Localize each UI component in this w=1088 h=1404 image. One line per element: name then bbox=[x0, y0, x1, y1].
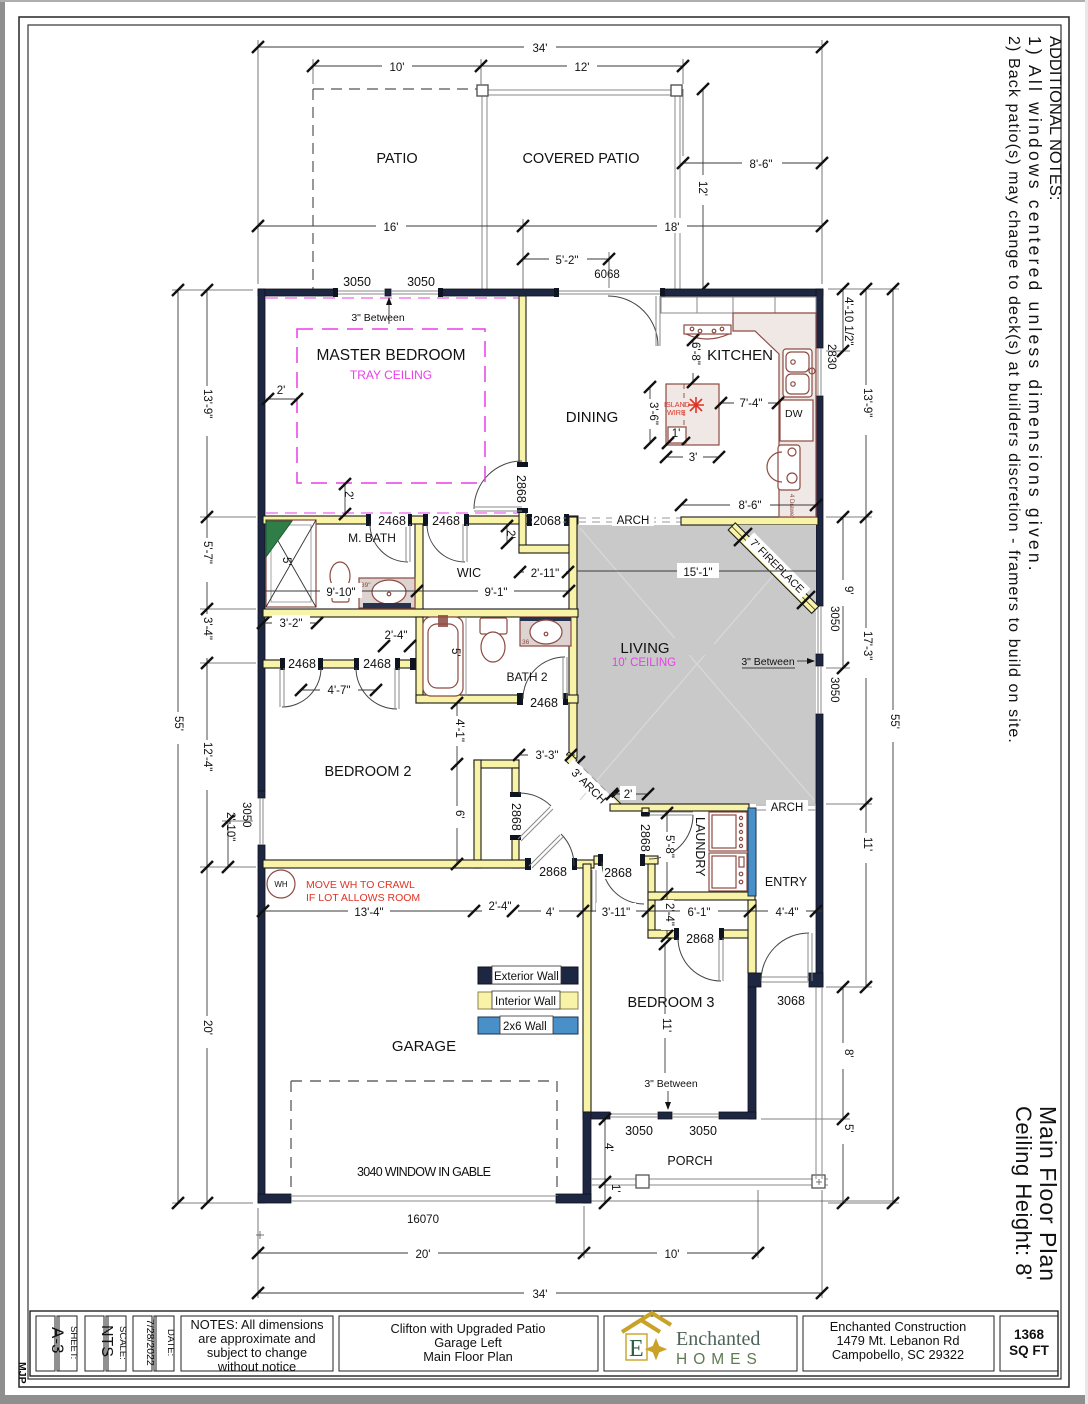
svg-text:11': 11' bbox=[660, 1018, 672, 1032]
svg-text:DINING: DINING bbox=[566, 409, 619, 426]
svg-text:39": 39" bbox=[361, 582, 371, 589]
svg-text:Interior Wall: Interior Wall bbox=[495, 996, 556, 1008]
svg-text:4': 4' bbox=[602, 1143, 614, 1152]
svg-text:TRAY CEILING: TRAY CEILING bbox=[350, 368, 432, 382]
svg-text:Garage Left: Garage Left bbox=[434, 1335, 502, 1350]
svg-text:2068: 2068 bbox=[533, 514, 561, 528]
svg-text:3'-4": 3'-4" bbox=[201, 617, 213, 640]
svg-text:17'-3": 17'-3" bbox=[861, 631, 873, 660]
svg-text:6'-8": 6'-8" bbox=[689, 342, 701, 365]
svg-text:SHEET:: SHEET: bbox=[68, 1326, 79, 1359]
svg-text:Ceiling Height: 8': Ceiling Height: 8' bbox=[1011, 1106, 1036, 1281]
svg-text:2830: 2830 bbox=[825, 344, 837, 370]
svg-text:3'-2": 3'-2" bbox=[280, 618, 303, 630]
svg-text:3'-6": 3'-6" bbox=[647, 402, 659, 425]
svg-text:13'-4": 13'-4" bbox=[354, 907, 383, 919]
svg-text:2x6 Wall: 2x6 Wall bbox=[503, 1021, 547, 1033]
svg-text:subject to change: subject to change bbox=[207, 1345, 307, 1360]
svg-text:8'-6": 8'-6" bbox=[750, 159, 773, 171]
svg-text:2868: 2868 bbox=[509, 803, 523, 831]
svg-text:2868: 2868 bbox=[514, 475, 528, 503]
svg-text:2'-4": 2'-4" bbox=[489, 901, 512, 913]
svg-text:ARCH: ARCH bbox=[771, 802, 804, 814]
svg-text:Campobello, SC 29322: Campobello, SC 29322 bbox=[832, 1347, 964, 1362]
svg-text:2468: 2468 bbox=[363, 657, 391, 671]
svg-text:16': 16' bbox=[384, 222, 399, 234]
svg-text:6068: 6068 bbox=[594, 269, 620, 281]
svg-text:WIC: WIC bbox=[457, 566, 481, 580]
svg-text:3" Between: 3" Between bbox=[351, 312, 405, 324]
svg-text:2468: 2468 bbox=[288, 657, 316, 671]
svg-text:ADDITIONAL NOTES:: ADDITIONAL NOTES: bbox=[1046, 36, 1064, 200]
svg-text:2468: 2468 bbox=[378, 514, 406, 528]
svg-text:HOMES: HOMES bbox=[676, 1351, 763, 1368]
svg-text:2868: 2868 bbox=[686, 932, 714, 946]
svg-text:2'-4": 2'-4" bbox=[663, 903, 675, 926]
svg-text:3'-11": 3'-11" bbox=[602, 907, 630, 919]
svg-text:are approximate and: are approximate and bbox=[198, 1331, 315, 1346]
svg-text:2'-4": 2'-4" bbox=[385, 630, 408, 642]
svg-text:A-3: A-3 bbox=[48, 1327, 67, 1353]
svg-text:16070: 16070 bbox=[407, 1214, 439, 1226]
svg-text:4 Drawer: 4 Drawer bbox=[788, 494, 794, 518]
svg-text:3040 WINDOW IN GABLE: 3040 WINDOW IN GABLE bbox=[357, 1165, 491, 1179]
svg-text:5'-8": 5'-8" bbox=[663, 835, 675, 858]
svg-text:ARCH: ARCH bbox=[617, 515, 650, 527]
svg-text:9'-1": 9'-1" bbox=[485, 587, 508, 599]
svg-text:ENTRY: ENTRY bbox=[765, 875, 808, 889]
svg-text:COVERED PATIO: COVERED PATIO bbox=[522, 151, 639, 167]
svg-text:Enchanted: Enchanted bbox=[676, 1328, 760, 1350]
svg-text:7/28/2022: 7/28/2022 bbox=[144, 1319, 156, 1366]
svg-text:2': 2' bbox=[504, 530, 516, 539]
svg-text:MOVE WH TO CRAWL: MOVE WH TO CRAWL bbox=[306, 879, 415, 891]
svg-text:3050: 3050 bbox=[407, 275, 435, 289]
svg-text:GARAGE: GARAGE bbox=[392, 1038, 456, 1055]
svg-text:13'-9": 13'-9" bbox=[861, 388, 873, 417]
svg-text:5': 5' bbox=[842, 1124, 854, 1133]
svg-text:Clifton with Upgraded Patio: Clifton with Upgraded Patio bbox=[390, 1321, 545, 1336]
svg-text:55': 55' bbox=[888, 714, 900, 729]
svg-text:WIRE: WIRE bbox=[667, 408, 686, 417]
svg-text:4'-10 1/2": 4'-10 1/2" bbox=[842, 297, 854, 345]
svg-text:20': 20' bbox=[201, 1020, 213, 1035]
svg-text:34': 34' bbox=[533, 1289, 548, 1301]
svg-text:NOTES: All dimensions: NOTES: All dimensions bbox=[191, 1317, 324, 1332]
svg-text:2868: 2868 bbox=[604, 866, 632, 880]
svg-text:NTS: NTS bbox=[98, 1325, 115, 1357]
svg-text:55': 55' bbox=[172, 716, 184, 731]
svg-text:20': 20' bbox=[416, 1249, 431, 1261]
svg-text:MASTER BEDROOM: MASTER BEDROOM bbox=[317, 347, 466, 364]
svg-text:36: 36 bbox=[522, 639, 530, 646]
svg-text:BATH 2: BATH 2 bbox=[506, 670, 547, 684]
svg-text:9'-10": 9'-10" bbox=[326, 587, 355, 599]
svg-text:10': 10' bbox=[390, 62, 405, 74]
svg-text:DW: DW bbox=[785, 408, 803, 420]
svg-text:SQ FT: SQ FT bbox=[1009, 1343, 1050, 1358]
svg-text:2868: 2868 bbox=[638, 824, 652, 852]
svg-text:4'-4": 4'-4" bbox=[776, 907, 799, 919]
svg-text:5': 5' bbox=[449, 648, 461, 657]
svg-text:18': 18' bbox=[665, 222, 680, 234]
svg-text:11': 11' bbox=[861, 837, 873, 851]
svg-text:2': 2' bbox=[342, 491, 354, 500]
svg-text:3050: 3050 bbox=[625, 1124, 653, 1138]
svg-text:IF LOT ALLOWS ROOM: IF LOT ALLOWS ROOM bbox=[306, 892, 420, 904]
svg-text:5': 5' bbox=[280, 557, 292, 566]
svg-text:3" Between: 3" Between bbox=[741, 656, 795, 668]
svg-text:3'-3": 3'-3" bbox=[536, 750, 559, 762]
svg-text:Exterior Wall: Exterior Wall bbox=[494, 971, 559, 983]
svg-text:34': 34' bbox=[533, 43, 548, 55]
svg-text:3': 3' bbox=[689, 452, 698, 464]
svg-text:8'-6": 8'-6" bbox=[739, 500, 762, 512]
svg-text:WH: WH bbox=[274, 880, 288, 889]
svg-text:M. BATH: M. BATH bbox=[348, 531, 396, 545]
svg-text:12': 12' bbox=[575, 62, 590, 74]
svg-text:13'-9": 13'-9" bbox=[201, 389, 213, 418]
svg-text:LIVING: LIVING bbox=[620, 640, 669, 657]
svg-text:3050: 3050 bbox=[689, 1124, 717, 1138]
svg-text:10': 10' bbox=[665, 1249, 680, 1261]
svg-text:4'-1": 4'-1" bbox=[453, 719, 465, 742]
svg-text:without notice: without notice bbox=[217, 1359, 296, 1374]
svg-text:10' CEILING: 10' CEILING bbox=[612, 657, 676, 669]
svg-text:2468: 2468 bbox=[530, 696, 558, 710]
svg-text:3068: 3068 bbox=[777, 994, 805, 1008]
svg-text:PATIO: PATIO bbox=[376, 151, 417, 167]
svg-text:8': 8' bbox=[842, 1049, 854, 1058]
svg-text:2868: 2868 bbox=[539, 865, 567, 879]
svg-text:3050: 3050 bbox=[828, 677, 840, 703]
svg-text:9': 9' bbox=[842, 586, 854, 595]
svg-text:3050: 3050 bbox=[240, 802, 252, 828]
svg-text:5'-2": 5'-2" bbox=[556, 255, 579, 267]
svg-text:Main Floor Plan: Main Floor Plan bbox=[423, 1349, 513, 1364]
svg-text:1479 Mt. Lebanon Rd: 1479 Mt. Lebanon Rd bbox=[836, 1333, 959, 1348]
svg-text:12'-4": 12'-4" bbox=[201, 742, 213, 771]
svg-text:PORCH: PORCH bbox=[667, 1154, 712, 1168]
svg-text:6': 6' bbox=[453, 810, 465, 819]
svg-text:SCALE:: SCALE: bbox=[117, 1326, 128, 1360]
svg-text:E: E bbox=[629, 1336, 644, 1362]
svg-text:15'-1": 15'-1" bbox=[683, 567, 712, 579]
svg-text:Main Floor Plan: Main Floor Plan bbox=[1035, 1106, 1061, 1282]
svg-text:1': 1' bbox=[609, 1184, 621, 1193]
svg-text:6'-1": 6'-1" bbox=[688, 907, 711, 919]
svg-text:3" Between: 3" Between bbox=[644, 1078, 698, 1090]
svg-text:2) Back patio(s) may change to: 2) Back patio(s) may change to deck(s) a… bbox=[1005, 36, 1022, 744]
svg-text:2': 2' bbox=[277, 385, 286, 397]
svg-text:5'-7": 5'-7" bbox=[201, 541, 213, 564]
svg-text:2468: 2468 bbox=[432, 514, 460, 528]
svg-text:2'-11": 2'-11" bbox=[531, 568, 559, 580]
svg-text:KITCHEN: KITCHEN bbox=[707, 347, 773, 364]
svg-text:4'-7": 4'-7" bbox=[328, 685, 351, 697]
svg-text:BEDROOM 3: BEDROOM 3 bbox=[627, 995, 714, 1011]
svg-text:3050: 3050 bbox=[828, 606, 840, 632]
svg-text:7'-4": 7'-4" bbox=[740, 398, 763, 410]
svg-text:BEDROOM 2: BEDROOM 2 bbox=[324, 764, 411, 780]
svg-text:LAUNDRY: LAUNDRY bbox=[693, 817, 707, 877]
svg-text:1368: 1368 bbox=[1014, 1327, 1045, 1342]
svg-text:Enchanted Construction: Enchanted Construction bbox=[830, 1319, 967, 1334]
svg-text:4': 4' bbox=[546, 907, 555, 919]
svg-text:3050: 3050 bbox=[343, 275, 371, 289]
svg-text:DATE:: DATE: bbox=[165, 1329, 176, 1356]
svg-text:12': 12' bbox=[696, 181, 708, 196]
svg-text:2': 2' bbox=[624, 789, 633, 801]
svg-text:MJP: MJP bbox=[16, 1362, 28, 1384]
svg-text:1) All windows centered unless: 1) All windows centered unless dimension… bbox=[1025, 36, 1045, 574]
